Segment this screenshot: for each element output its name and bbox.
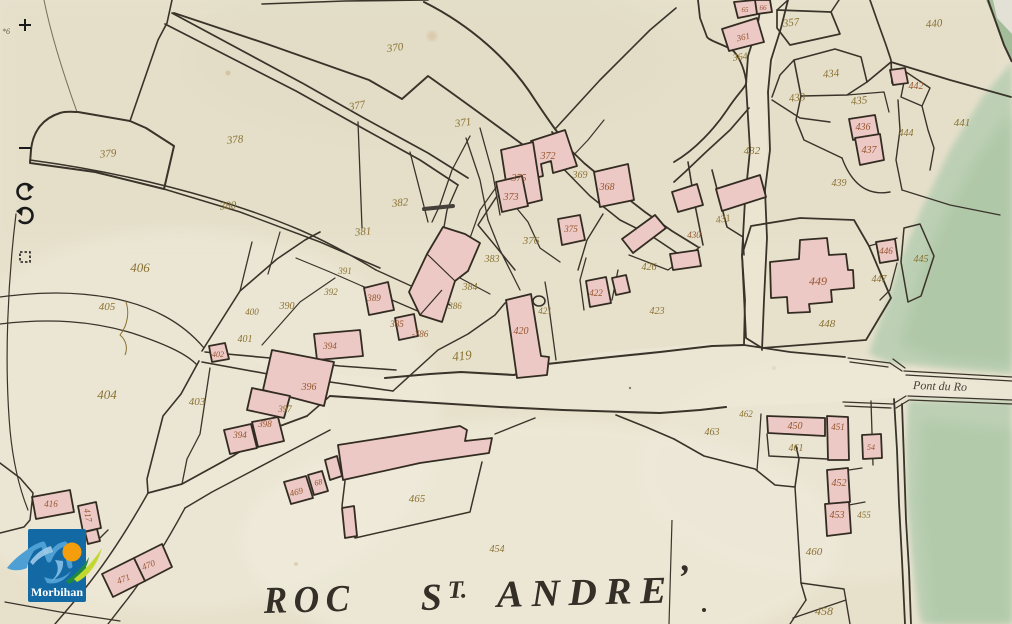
svg-text:389: 389 bbox=[366, 293, 381, 303]
svg-text:450: 450 bbox=[788, 421, 803, 432]
svg-text:442: 442 bbox=[909, 81, 924, 92]
svg-text:382: 382 bbox=[390, 196, 409, 210]
svg-text:444: 444 bbox=[899, 128, 914, 139]
svg-text:Morbihan: Morbihan bbox=[31, 585, 83, 599]
svg-text:432: 432 bbox=[744, 145, 761, 157]
svg-text:370: 370 bbox=[385, 41, 404, 55]
svg-text:364: 364 bbox=[731, 51, 748, 64]
svg-text:423: 423 bbox=[650, 306, 665, 317]
svg-text:404: 404 bbox=[97, 387, 117, 402]
svg-text:436: 436 bbox=[856, 122, 871, 133]
svg-text:422: 422 bbox=[589, 288, 603, 298]
svg-text:392: 392 bbox=[323, 287, 338, 297]
svg-text:405: 405 bbox=[99, 301, 116, 313]
svg-text:446: 446 bbox=[879, 246, 893, 256]
svg-text:368: 368 bbox=[599, 182, 615, 193]
svg-text:420: 420 bbox=[514, 326, 529, 337]
svg-text:357: 357 bbox=[781, 16, 800, 30]
svg-text:-786: -786 bbox=[412, 329, 429, 339]
svg-text:463: 463 bbox=[705, 427, 720, 438]
svg-text:’: ’ bbox=[677, 557, 689, 597]
svg-text:390: 390 bbox=[279, 301, 295, 312]
svg-text:375: 375 bbox=[563, 224, 578, 234]
svg-text:455: 455 bbox=[857, 510, 871, 520]
svg-text:375: 375 bbox=[511, 173, 527, 184]
svg-text:416: 416 bbox=[44, 499, 58, 509]
svg-text:437: 437 bbox=[862, 145, 878, 156]
svg-text:435: 435 bbox=[850, 94, 868, 108]
svg-text:462: 462 bbox=[739, 409, 753, 419]
svg-text:451: 451 bbox=[831, 422, 845, 432]
svg-text:402: 402 bbox=[212, 350, 224, 359]
svg-text:376: 376 bbox=[522, 235, 540, 247]
svg-text:383: 383 bbox=[484, 254, 500, 265]
svg-text:430: 430 bbox=[687, 230, 701, 240]
svg-text:ANDRE: ANDRE bbox=[494, 569, 675, 616]
svg-text:433: 433 bbox=[788, 91, 806, 105]
svg-text:66: 66 bbox=[760, 4, 768, 12]
svg-text:54: 54 bbox=[867, 443, 875, 452]
svg-text:460: 460 bbox=[806, 546, 823, 558]
svg-text:Pont du Ro: Pont du Ro bbox=[912, 378, 967, 394]
svg-text:391: 391 bbox=[337, 266, 352, 276]
svg-text:396: 396 bbox=[301, 382, 317, 393]
svg-text:447: 447 bbox=[872, 274, 888, 285]
svg-text:426: 426 bbox=[642, 262, 657, 273]
svg-text:445: 445 bbox=[914, 254, 929, 265]
svg-text:458: 458 bbox=[815, 604, 833, 618]
svg-text:449: 449 bbox=[809, 274, 827, 288]
svg-text:378: 378 bbox=[225, 133, 244, 147]
svg-text:419: 419 bbox=[451, 347, 472, 364]
svg-text:400: 400 bbox=[245, 307, 259, 317]
svg-text:385: 385 bbox=[389, 319, 404, 329]
svg-text:381: 381 bbox=[353, 225, 371, 238]
svg-text:372: 372 bbox=[540, 151, 556, 162]
svg-text:440: 440 bbox=[925, 17, 943, 30]
svg-text:453: 453 bbox=[830, 510, 845, 521]
svg-text:406: 406 bbox=[130, 260, 150, 275]
svg-text:465: 465 bbox=[409, 493, 426, 505]
svg-text:373: 373 bbox=[503, 192, 519, 203]
svg-text:439: 439 bbox=[832, 178, 847, 189]
svg-text:T.: T. bbox=[447, 577, 467, 604]
svg-text:*6: *6 bbox=[2, 27, 10, 36]
svg-text:384: 384 bbox=[462, 282, 478, 293]
svg-text:452: 452 bbox=[832, 478, 847, 489]
svg-text:369: 369 bbox=[572, 170, 588, 181]
svg-text:S: S bbox=[420, 576, 442, 619]
svg-text:398: 398 bbox=[257, 419, 272, 429]
svg-text:386: 386 bbox=[447, 301, 462, 311]
svg-text:403: 403 bbox=[189, 396, 206, 408]
svg-text:394: 394 bbox=[322, 341, 337, 351]
svg-text:ROC: ROC bbox=[262, 578, 356, 622]
svg-text:397: 397 bbox=[277, 404, 292, 414]
svg-text:380: 380 bbox=[218, 199, 237, 212]
svg-text:441: 441 bbox=[954, 117, 971, 129]
svg-text:65: 65 bbox=[742, 6, 750, 14]
svg-text:379: 379 bbox=[98, 147, 117, 161]
svg-text:421: 421 bbox=[538, 306, 552, 316]
svg-text:461: 461 bbox=[789, 443, 804, 454]
svg-text:434: 434 bbox=[822, 67, 840, 81]
svg-text:371: 371 bbox=[453, 116, 472, 130]
svg-text:394: 394 bbox=[232, 430, 247, 440]
svg-text:448: 448 bbox=[819, 318, 836, 330]
svg-text:454: 454 bbox=[490, 544, 505, 555]
svg-text:401: 401 bbox=[238, 334, 253, 345]
